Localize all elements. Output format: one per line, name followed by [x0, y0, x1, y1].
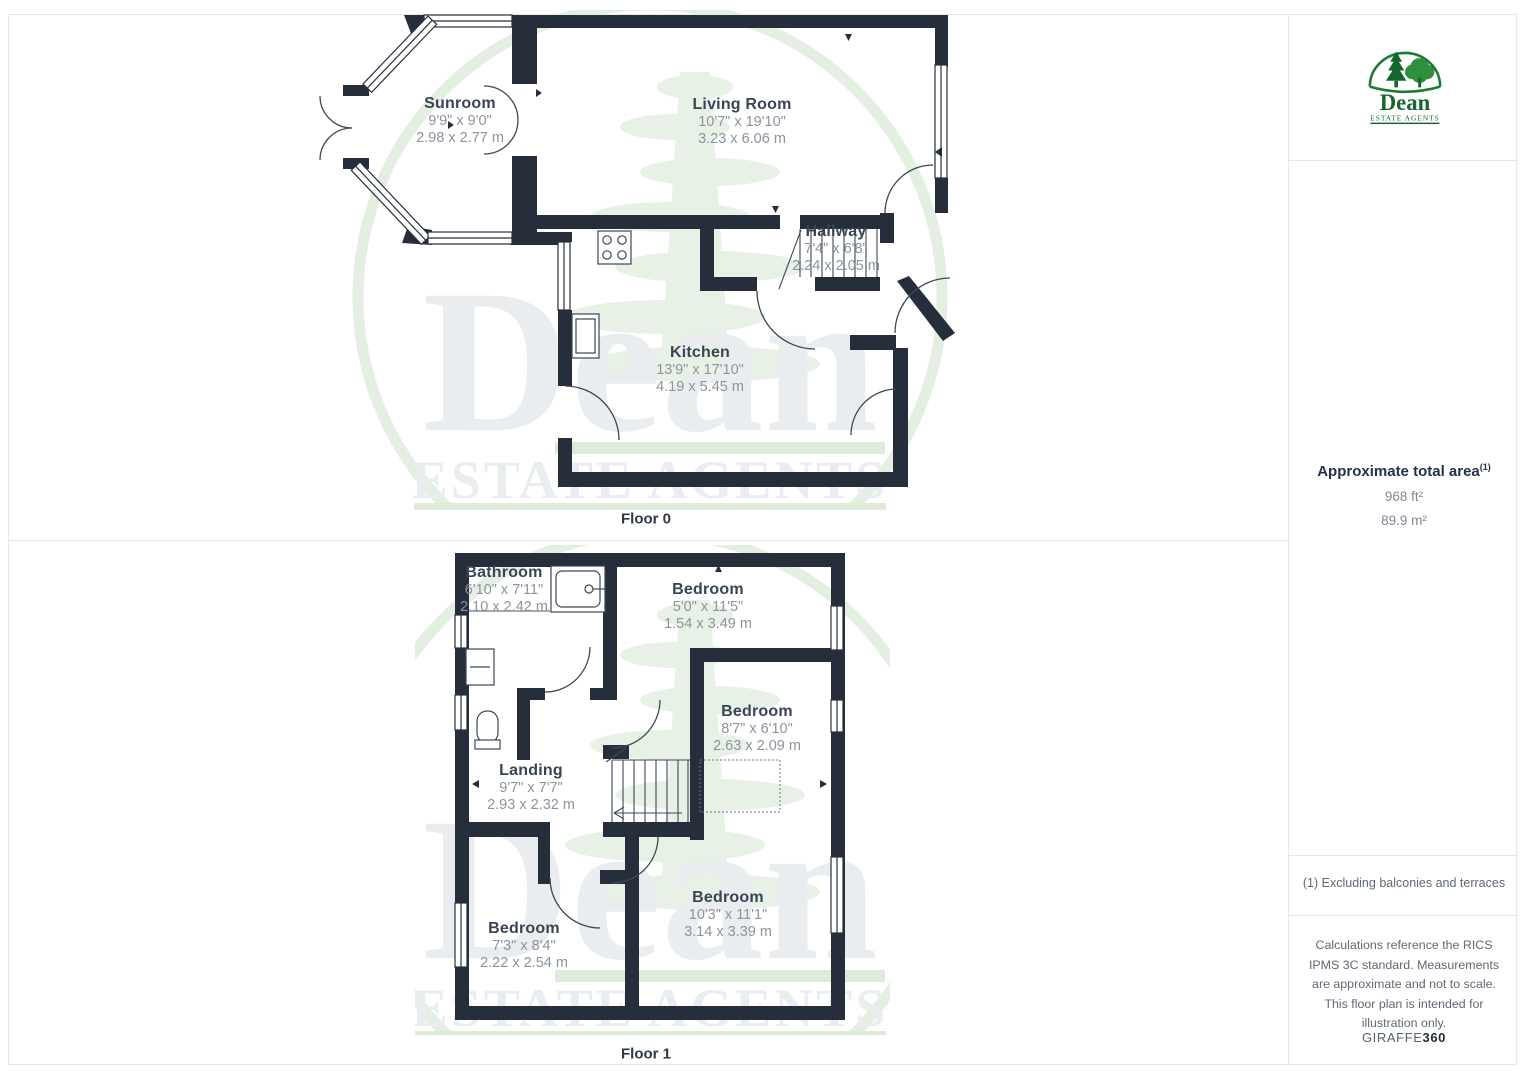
disclaimer: Calculations reference the RICS IPMS 3C …: [1304, 936, 1504, 1034]
room-label-kitchen: Kitchen 13'9" x 17'10" 4.19 x 5.45 m: [656, 344, 744, 397]
bathroom-sink-icon: [466, 649, 494, 685]
logo-name: Dean: [1380, 90, 1431, 115]
floor1-label: Floor 1: [621, 1046, 671, 1063]
room-dimensions-metric: 3.23 x 6.06 m: [692, 131, 791, 149]
room-dimensions-metric: 4.19 x 5.45 m: [656, 379, 744, 397]
room-label-bathroom: Bathroom 6'10" x 7'11" 2.10 x 2.42 m: [460, 564, 548, 617]
room-label-bedroom-bottom-right: Bedroom 10'3" x 11'1" 3.14 x 3.39 m: [684, 889, 772, 942]
room-dimensions-metric: 3.14 x 3.39 m: [684, 924, 772, 942]
room-dimensions-imperial: 13'9" x 17'10": [656, 361, 744, 379]
toilet-icon: [475, 711, 500, 749]
room-dimensions-imperial: 9'9" x 9'0": [416, 112, 504, 130]
room-dimensions-imperial: 10'7" x 19'10": [692, 113, 791, 131]
room-name: Landing: [487, 762, 575, 780]
room-label-bedroom-bottom-left: Bedroom 7'3" x 8'4" 2.22 x 2.54 m: [480, 920, 568, 973]
total-area-footnote-marker: (1): [1480, 462, 1491, 472]
room-name: Kitchen: [656, 344, 744, 362]
room-dimensions-metric: 2.93 x 2.32 m: [487, 797, 575, 815]
agency-logo-graphic: Dean ESTATE AGENTS: [1361, 38, 1449, 128]
room-dimensions-imperial: 9'7" x 7'7": [487, 779, 575, 797]
room-dimensions-imperial: 10'3" x 11'1": [684, 906, 772, 924]
room-name: Living Room: [692, 96, 791, 114]
room-dimensions-metric: 2.22 x 2.54 m: [480, 955, 568, 973]
total-area-metric: 89.9 m²: [1289, 513, 1519, 528]
room-label-hallway: Hallway 7'4" x 6'8" 2.24 x 2.05 m: [792, 223, 880, 276]
room-dimensions-metric: 2.63 x 2.09 m: [713, 738, 801, 756]
total-area-imperial: 968 ft²: [1289, 489, 1519, 504]
room-label-sunroom: Sunroom 9'9" x 9'0" 2.98 x 2.77 m: [416, 95, 504, 148]
agency-logo: Dean ESTATE AGENTS: [1361, 38, 1449, 130]
floorplan-page: Dean ESTATE AGENTS: [0, 0, 1527, 1080]
floor-panel-divider: [9, 540, 1288, 541]
brand-name: GIRAFFE: [1362, 1030, 1423, 1045]
total-area-title: Approximate total area(1): [1289, 462, 1519, 480]
room-dimensions-metric: 2.98 x 2.77 m: [416, 130, 504, 148]
room-label-landing: Landing 9'7" x 7'7" 2.93 x 2.32 m: [487, 762, 575, 815]
room-name: Bedroom: [713, 703, 801, 721]
room-name: Bedroom: [684, 889, 772, 907]
room-dimensions-imperial: 7'3" x 8'4": [480, 937, 568, 955]
hob-icon: [598, 231, 631, 264]
footnote: (1) Excluding balconies and terraces: [1289, 876, 1519, 890]
room-name: Bathroom: [460, 564, 548, 582]
room-name: Bedroom: [664, 581, 752, 599]
room-dimensions-metric: 2.10 x 2.42 m: [460, 599, 548, 617]
room-dimensions-imperial: 6'10" x 7'11": [460, 581, 548, 599]
room-dimensions-metric: 1.54 x 3.49 m: [664, 616, 752, 634]
room-name: Sunroom: [416, 95, 504, 113]
total-area-title-text: Approximate total area: [1317, 463, 1480, 480]
room-dimensions-imperial: 8'7" x 6'10": [713, 720, 801, 738]
room-label-bedroom-middle: Bedroom 8'7" x 6'10" 2.63 x 2.09 m: [713, 703, 801, 756]
logo-tagline: ESTATE AGENTS: [1370, 113, 1440, 122]
giraffe360-brand: GIRAFFE360: [1289, 1030, 1519, 1045]
room-name: Hallway: [792, 223, 880, 241]
room-dimensions-imperial: 5'0" x 11'5": [664, 598, 752, 616]
brand-suffix: 360: [1423, 1030, 1447, 1045]
total-area-block: Approximate total area(1) 968 ft² 89.9 m…: [1289, 462, 1519, 528]
room-dimensions-metric: 2.24 x 2.05 m: [792, 258, 880, 276]
room-dimensions-imperial: 7'4" x 6'8": [792, 240, 880, 258]
sidebar: Dean ESTATE AGENTS Approximate total are…: [1289, 14, 1519, 1065]
kitchen-sink-icon: [572, 314, 599, 358]
room-label-bedroom-top: Bedroom 5'0" x 11'5" 1.54 x 3.49 m: [664, 581, 752, 634]
floor0-label: Floor 0: [621, 511, 671, 528]
room-name: Bedroom: [480, 920, 568, 938]
room-label-living-room: Living Room 10'7" x 19'10" 3.23 x 6.06 m: [692, 96, 791, 149]
shower-icon: [551, 566, 605, 612]
